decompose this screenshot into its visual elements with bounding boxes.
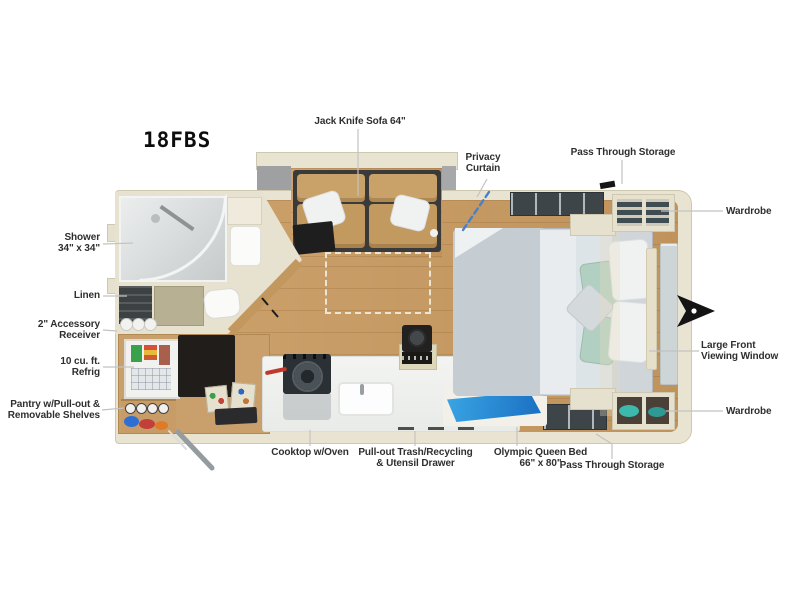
shower-head (151, 214, 160, 223)
label-accessory-receiver: 2" Accessory Receiver (10, 319, 100, 341)
tv-retro (402, 325, 432, 352)
side-table (293, 221, 336, 255)
label-sofa: Jack Knife Sofa 64" (270, 116, 450, 127)
pantry-item (125, 403, 136, 414)
label-pantry: Pantry w/Pull-out & Removable Shelves (0, 399, 100, 421)
drawer-handle (458, 427, 474, 430)
sink-faucet (360, 384, 364, 395)
label-wardrobe-bottom: Wardrobe (726, 406, 796, 417)
wardrobe-shelf (646, 397, 669, 424)
kitchen-sink (338, 382, 394, 416)
label-pass-through-bottom: Pass Through Storage (542, 460, 682, 471)
pantry-shelf (121, 399, 176, 433)
label-linen: Linen (20, 290, 100, 301)
overhead-cabinet (570, 388, 616, 410)
oven-glass-cover (283, 394, 331, 420)
clothes-item (648, 407, 666, 417)
bathroom-base-cabinet (154, 286, 204, 326)
front-viewing-window (660, 243, 678, 385)
model-title: 18FBS (143, 128, 211, 152)
drawer-handle (428, 427, 444, 430)
table-location-dashed-outline (325, 252, 431, 314)
wardrobe-shelf (617, 199, 642, 226)
bathroom-sink (230, 226, 261, 266)
fridge-food-item (159, 345, 170, 365)
pantry-item (136, 403, 147, 414)
wardrobe-shelf (646, 199, 669, 226)
fridge-ice-tray (131, 368, 171, 390)
headboard-rail (646, 248, 657, 370)
roof-vent-mark (600, 181, 616, 190)
wardrobe-top (612, 194, 675, 232)
label-privacy-curtain: Privacy Curtain (450, 152, 516, 174)
wardrobe-shelf (617, 397, 642, 424)
wardrobe-bottom (612, 392, 675, 430)
clothes-item (619, 405, 639, 417)
pantry-item (158, 403, 169, 414)
toilet-paper-roll (144, 318, 157, 331)
label-front-window: Large Front Viewing Window (701, 340, 796, 362)
label-trash-drawer: Pull-out Trash/Recycling & Utensil Drawe… (338, 447, 493, 469)
tv-screen (408, 329, 426, 347)
laptop (215, 407, 258, 425)
overhead-cabinet (570, 214, 616, 236)
pantry-item (124, 416, 139, 427)
label-wardrobe-top: Wardrobe (726, 206, 796, 217)
drawer-handle (398, 427, 414, 430)
tv-stand-drawer (402, 352, 432, 364)
label-pass-through-top: Pass Through Storage (553, 147, 693, 158)
bed-lift-shadow (600, 216, 620, 416)
sofa-knob (430, 229, 438, 237)
bedroom-window-top (510, 192, 604, 216)
pantry-item (155, 421, 168, 430)
toilet (203, 287, 242, 320)
refrigerator (124, 339, 180, 399)
cooktop-burner (292, 361, 323, 392)
pantry-item (139, 419, 155, 429)
fridge-food-item (131, 345, 142, 362)
label-shower: Shower 34" x 34" (20, 232, 100, 254)
bed-duvet (453, 228, 543, 396)
bathroom-cabinet (227, 197, 262, 225)
label-refrigerator: 10 cu. ft. Refrig (20, 356, 100, 378)
pantry-item (147, 403, 158, 414)
fridge-food-item (144, 345, 157, 360)
floorplan-canvas: 18FBS (0, 0, 800, 600)
